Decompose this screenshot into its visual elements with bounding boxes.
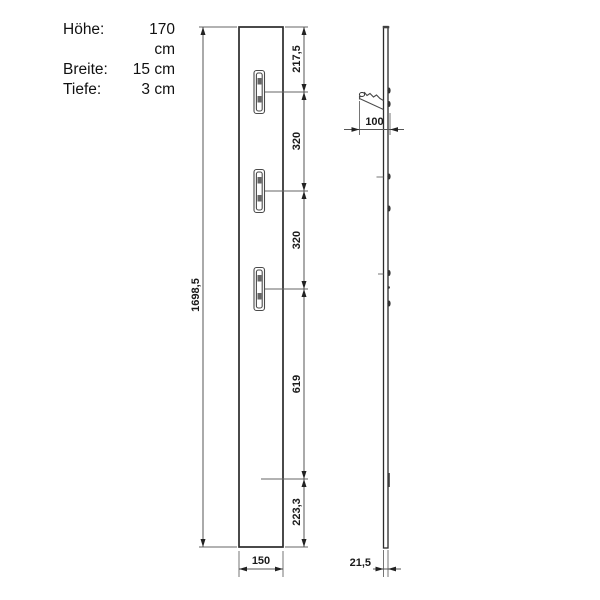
dim-hook-depth: 100 bbox=[344, 101, 404, 135]
side-hook bbox=[359, 93, 383, 110]
dim-panel-thickness: 21,5 bbox=[350, 550, 401, 577]
dim-label-top-segment: 217,5 bbox=[291, 45, 303, 73]
product-dimension-drawing: Höhe: 170 cm Breite: 15 cm Tiefe: 3 cm bbox=[0, 0, 600, 600]
dim-label-bottom-segment: 223,3 bbox=[291, 498, 303, 526]
technical-drawing-svg: 1698,5 217,5 320 320 619 223,3 bbox=[0, 0, 600, 600]
dim-label-total-height: 1698,5 bbox=[190, 278, 202, 312]
hook-tip-knob bbox=[359, 93, 364, 97]
dim-label-hook-depth: 100 bbox=[365, 116, 383, 128]
dim-label-panel-width: 150 bbox=[252, 555, 270, 567]
dim-panel-width: 150 bbox=[239, 555, 283, 571]
dim-label-panel-thickness: 21,5 bbox=[350, 557, 371, 569]
side-view: 100 21,5 bbox=[344, 27, 404, 578]
dim-segment-chain: 217,5 320 320 619 223,3 bbox=[291, 27, 307, 547]
front-panel bbox=[239, 27, 283, 547]
side-panel bbox=[384, 27, 389, 549]
dim-label-segment-320b: 320 bbox=[291, 231, 303, 249]
dim-label-segment-619: 619 bbox=[291, 375, 303, 393]
dim-label-segment-320a: 320 bbox=[291, 132, 303, 150]
front-view: 1698,5 217,5 320 320 619 223,3 bbox=[190, 27, 308, 577]
dim-total-height: 1698,5 bbox=[190, 27, 206, 547]
